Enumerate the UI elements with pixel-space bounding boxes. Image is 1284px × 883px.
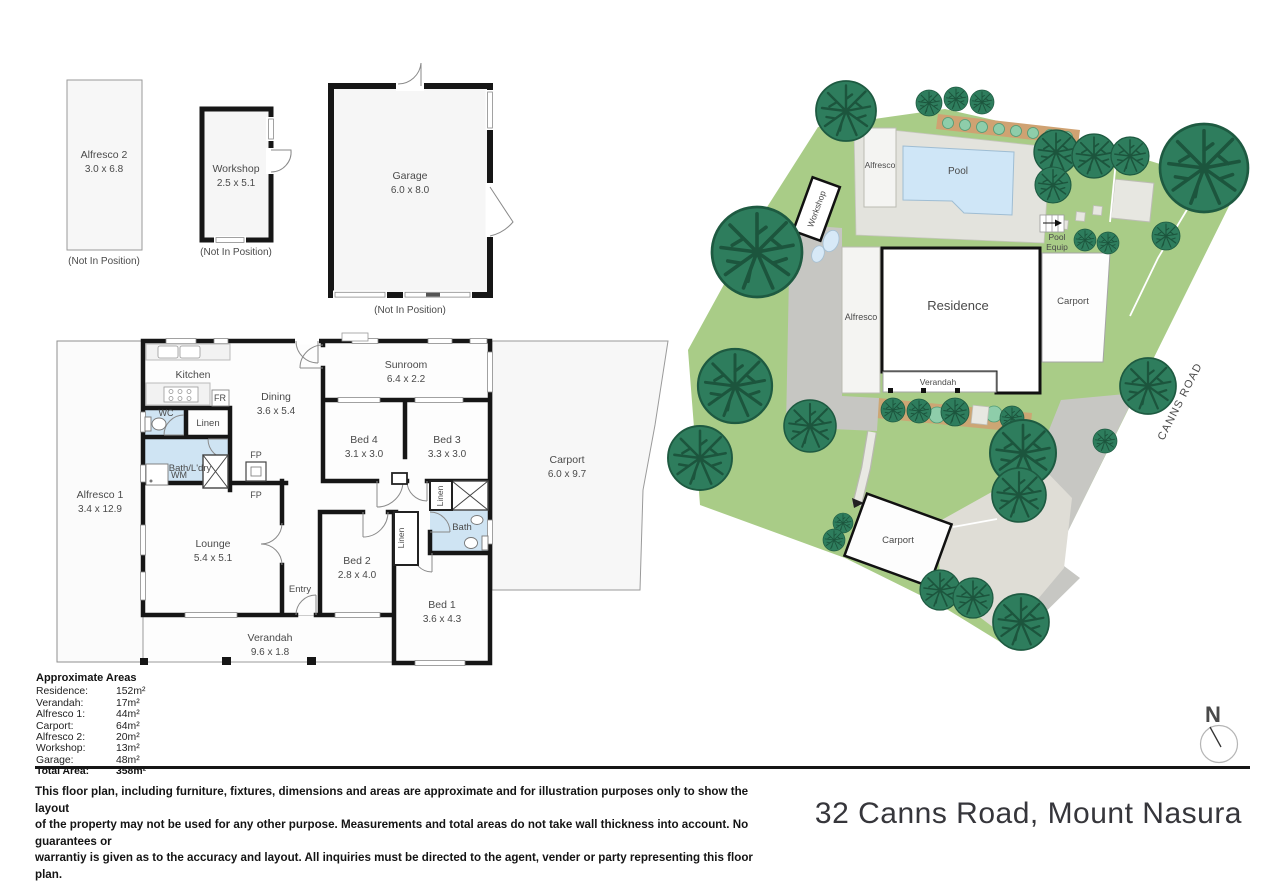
table-row: Garage:48m² (36, 755, 146, 766)
area-label: Verandah: (36, 698, 116, 709)
label-bed3: Bed 3 (433, 434, 461, 446)
label-linen-vertical2: Linen (435, 485, 445, 506)
area-value: 48m² (116, 755, 140, 766)
table-row: Carport:64m² (36, 721, 146, 732)
disclaimer: This floor plan, including furniture, fi… (35, 784, 755, 883)
alfresco2-dims: 3.0 x 6.8 (85, 164, 124, 175)
hall-cupboard (392, 473, 407, 484)
label-lounge: Lounge (195, 538, 230, 550)
garage-topdoor-gap (396, 81, 424, 91)
tree-icon (1074, 229, 1096, 251)
label-kitchen: Kitchen (175, 369, 210, 381)
garage-nip: (Not In Position) (374, 305, 446, 316)
tree-icon (1072, 134, 1116, 178)
disclaimer-line3: warrantiy is given as to the accuracy an… (35, 850, 755, 883)
label-bed2: Bed 2 (343, 555, 371, 567)
verandah-post (140, 658, 148, 665)
tree-icon (1035, 167, 1071, 203)
stepping-stone (1092, 206, 1102, 216)
tree-icon (1093, 429, 1117, 453)
table-row: Workshop:13m² (36, 743, 146, 754)
area-value: 20m² (116, 732, 140, 743)
toilet-tank-icon (482, 536, 488, 550)
workshop-dims: 2.5 x 5.1 (217, 178, 256, 189)
garage-bwindow1 (335, 292, 385, 297)
workshop-window (269, 119, 274, 139)
site-label-carport-top: Carport (1057, 296, 1089, 307)
label-linen: Linen (196, 418, 219, 429)
areas-title: Approximate Areas (36, 673, 146, 684)
tree-icon (953, 578, 993, 618)
label-wc: WC (159, 408, 174, 418)
label-fr: FR (214, 393, 226, 403)
label-sunroom: Sunroom (385, 359, 428, 371)
table-row: Alfresco 2:20m² (36, 732, 146, 743)
toilet-tank-icon (145, 417, 151, 431)
label-carport-fp: Carport (549, 454, 584, 466)
area-label: Workshop: (36, 743, 116, 754)
label-dining: Dining (261, 391, 291, 403)
area-value: 152m² (116, 686, 145, 697)
areas-table: Approximate Areas Residence:152m² Verand… (36, 673, 146, 778)
label-linen-vertical: Linen (396, 527, 406, 548)
workshop-label: Workshop (212, 163, 259, 175)
disclaimer-line1: This floor plan, including furniture, fi… (35, 784, 755, 817)
site-residence (882, 248, 1040, 393)
verandah-post (888, 388, 893, 393)
label-bath: Bath (452, 522, 472, 533)
site-label-pool-equip2: Equip (1046, 242, 1068, 252)
label-fp-top: FP (250, 450, 262, 460)
tree-icon (1152, 222, 1180, 250)
site-carport-top (1042, 253, 1110, 362)
alfresco2-nip: (Not In Position) (68, 256, 140, 267)
site-plan: Workshop (668, 81, 1248, 650)
toilet-icon (465, 538, 478, 549)
step-icon (342, 333, 368, 341)
compass: N (1201, 702, 1238, 763)
sink-icon (180, 346, 200, 358)
tree-icon (992, 468, 1046, 522)
area-value: 44m² (116, 709, 140, 720)
label-alfresco1: Alfresco 1 (77, 489, 124, 501)
area-label: Residence: (36, 686, 116, 697)
outbuilding-workshop: Workshop 2.5 x 5.1 (Not In Position) (200, 109, 291, 258)
label-verandah: Verandah (248, 632, 293, 644)
tree-icon (1160, 124, 1248, 212)
area-value: 17m² (116, 698, 140, 709)
area-label: Alfresco 2: (36, 732, 116, 743)
tree-icon (816, 81, 876, 141)
dims-sunroom: 6.4 x 2.2 (387, 374, 426, 385)
label-entry: Entry (289, 584, 311, 595)
verandah-post (955, 388, 960, 393)
divider-line (35, 766, 1250, 769)
tree-icon (823, 529, 845, 551)
area-label: Carport: (36, 721, 116, 732)
tree-icon (668, 426, 732, 490)
label-fp-bottom: FP (250, 490, 262, 500)
basin-icon (471, 516, 483, 525)
workshop-nip: (Not In Position) (200, 247, 272, 258)
tree-icon (712, 207, 802, 297)
room-alfresco1 (57, 341, 143, 662)
entry-top-door-gap (295, 338, 319, 345)
disclaimer-line2: of the property may not be used for any … (35, 817, 755, 850)
tree-icon (944, 87, 968, 111)
site-label-pool: Pool (948, 166, 968, 177)
area-value: 13m² (116, 743, 140, 754)
toilet-icon (152, 418, 166, 430)
tree-icon (1097, 232, 1119, 254)
label-bed1: Bed 1 (428, 599, 456, 611)
table-row: Verandah:17m² (36, 698, 146, 709)
tree-icon (1120, 358, 1176, 414)
site-label-pool-equip1: Pool (1048, 232, 1065, 242)
outbuilding-alfresco2: Alfresco 2 3.0 x 6.8 (Not In Position) (67, 80, 142, 267)
verandah-post (921, 388, 926, 393)
dims-bed4: 3.1 x 3.0 (345, 449, 384, 460)
tree-icon (993, 594, 1049, 650)
floorplan-sheet: Alfresco 2 3.0 x 6.8 (Not In Position) W… (0, 0, 1284, 775)
tree-icon (970, 90, 994, 114)
site-label-alfresco: Alfresco (845, 312, 878, 322)
garage-dims: 6.0 x 8.0 (391, 185, 430, 196)
site-label-pool-alfresco: Alfresco (865, 160, 896, 170)
garage-label: Garage (392, 170, 427, 182)
dims-bed3: 3.3 x 3.0 (428, 449, 467, 460)
table-row: Alfresco 1:44m² (36, 709, 146, 720)
garden-shed (1111, 179, 1154, 222)
label-wm: WM (171, 470, 187, 480)
area-value: 64m² (116, 721, 140, 732)
workshop-door-gap (266, 148, 275, 174)
sink-icon (158, 346, 178, 358)
outbuilding-garage: Garage 6.0 x 8.0 (Not In Position) (331, 63, 513, 316)
area-label: Garage: (36, 755, 116, 766)
alfresco2-label: Alfresco 2 (81, 149, 128, 161)
dims-alfresco1: 3.4 x 12.9 (78, 504, 122, 515)
tree-icon (881, 398, 905, 422)
tree-icon (1111, 137, 1149, 175)
tree-icon (784, 400, 836, 452)
compass-n-label: N (1205, 702, 1221, 727)
label-bed4: Bed 4 (350, 434, 378, 446)
tree-icon (907, 399, 931, 423)
site-label-verandah: Verandah (920, 377, 957, 387)
main-floorplan: Kitchen FR WC Linen Bath/L'dry WM Dining… (57, 333, 668, 666)
tree-icon (698, 349, 772, 423)
dims-carport-fp: 6.0 x 9.7 (548, 469, 587, 480)
tree-icon (941, 398, 969, 426)
dims-lounge: 5.4 x 5.1 (194, 553, 233, 564)
stepping-stone (1075, 212, 1085, 222)
paver (971, 405, 989, 425)
garage-bdoor-panel (426, 293, 440, 297)
workshop-bwindow (216, 238, 244, 243)
dims-verandah: 9.6 x 1.8 (251, 647, 290, 658)
tree-icon (916, 90, 942, 116)
washing-machine-icon (146, 464, 168, 485)
verandah-post (222, 657, 231, 665)
site-label-carport-bottom: Carport (882, 535, 914, 546)
dims-bed2: 2.8 x 4.0 (338, 570, 377, 581)
site-label-residence: Residence (927, 298, 988, 313)
area-label: Alfresco 1: (36, 709, 116, 720)
property-address: 32 Canns Road, Mount Nasura (815, 797, 1242, 831)
garage-rwindow (488, 92, 493, 128)
table-row: Residence:152m² (36, 686, 146, 697)
pool-equip-icon (1040, 215, 1064, 232)
verandah-post (307, 657, 316, 665)
dims-bed1: 3.6 x 4.3 (423, 614, 462, 625)
dims-dining: 3.6 x 5.4 (257, 406, 296, 417)
